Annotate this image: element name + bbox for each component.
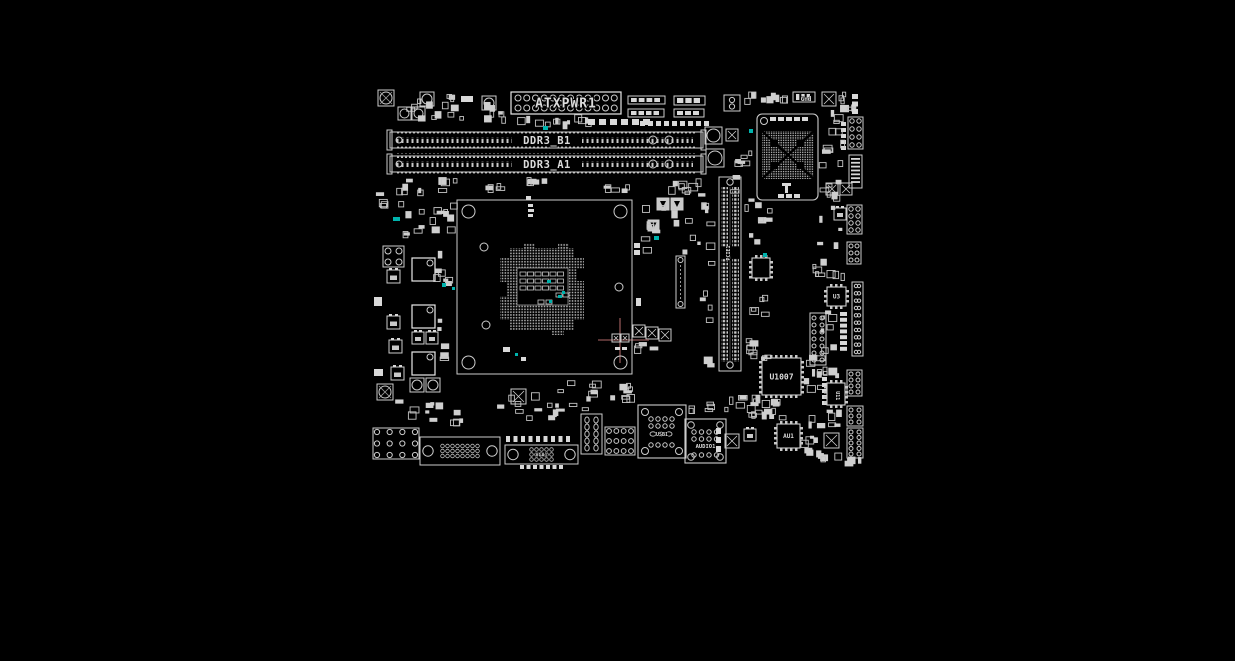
silk-label[interactable]: Gnd [801, 96, 812, 103]
silk-text: PCIE1 [726, 245, 732, 260]
silk-text: DDR3_A1 [523, 159, 571, 171]
silk-text: U11 [834, 391, 840, 400]
pad-column[interactable] [716, 428, 721, 452]
silk-text: AU1 [783, 433, 794, 440]
pcb-board-view: ATXPWR1GndDDR3_B1DDR3_A1PCIE1VGA1USB1AUD… [0, 0, 1235, 661]
pad-row[interactable] [640, 121, 709, 126]
pad[interactable] [461, 96, 473, 102]
highlight[interactable] [452, 287, 455, 290]
diode[interactable] [671, 198, 683, 210]
pad-row[interactable] [506, 436, 570, 442]
silk-text: U1007 [769, 372, 793, 381]
silk-text: U3 [833, 294, 841, 301]
mounting-hole[interactable] [378, 90, 394, 106]
silk-text: USB1 [656, 432, 668, 438]
pad[interactable] [374, 297, 382, 306]
pad-column[interactable] [840, 312, 847, 351]
board-canvas: ATXPWR1GndDDR3_B1DDR3_A1PCIE1VGA1USB1AUD… [0, 0, 1235, 661]
silk-text: ATXPWR1 [535, 97, 597, 112]
highlight[interactable] [749, 129, 753, 133]
pad[interactable] [636, 298, 641, 306]
silk-text: Gnd [801, 96, 812, 103]
highlight[interactable] [763, 253, 767, 257]
pad[interactable] [374, 369, 383, 376]
dimm-slot-b1[interactable]: DDR3_B1 [387, 129, 706, 151]
silk-text: AUDIO1 [696, 444, 717, 450]
pcie-x16-slot[interactable]: PCIE1 [719, 177, 741, 371]
mounting-hole[interactable] [377, 384, 393, 400]
diode[interactable] [657, 198, 669, 210]
pad[interactable] [634, 250, 640, 255]
pad[interactable] [634, 243, 640, 248]
silk-text: DDR3_B1 [523, 135, 571, 147]
pad-column[interactable] [852, 94, 858, 114]
highlight[interactable] [393, 217, 400, 221]
silk-text: VGA1 [535, 453, 547, 459]
highlight[interactable] [654, 236, 659, 240]
highlight[interactable] [442, 283, 446, 287]
dimm-slot-a1[interactable]: DDR3_A1 [387, 153, 706, 175]
